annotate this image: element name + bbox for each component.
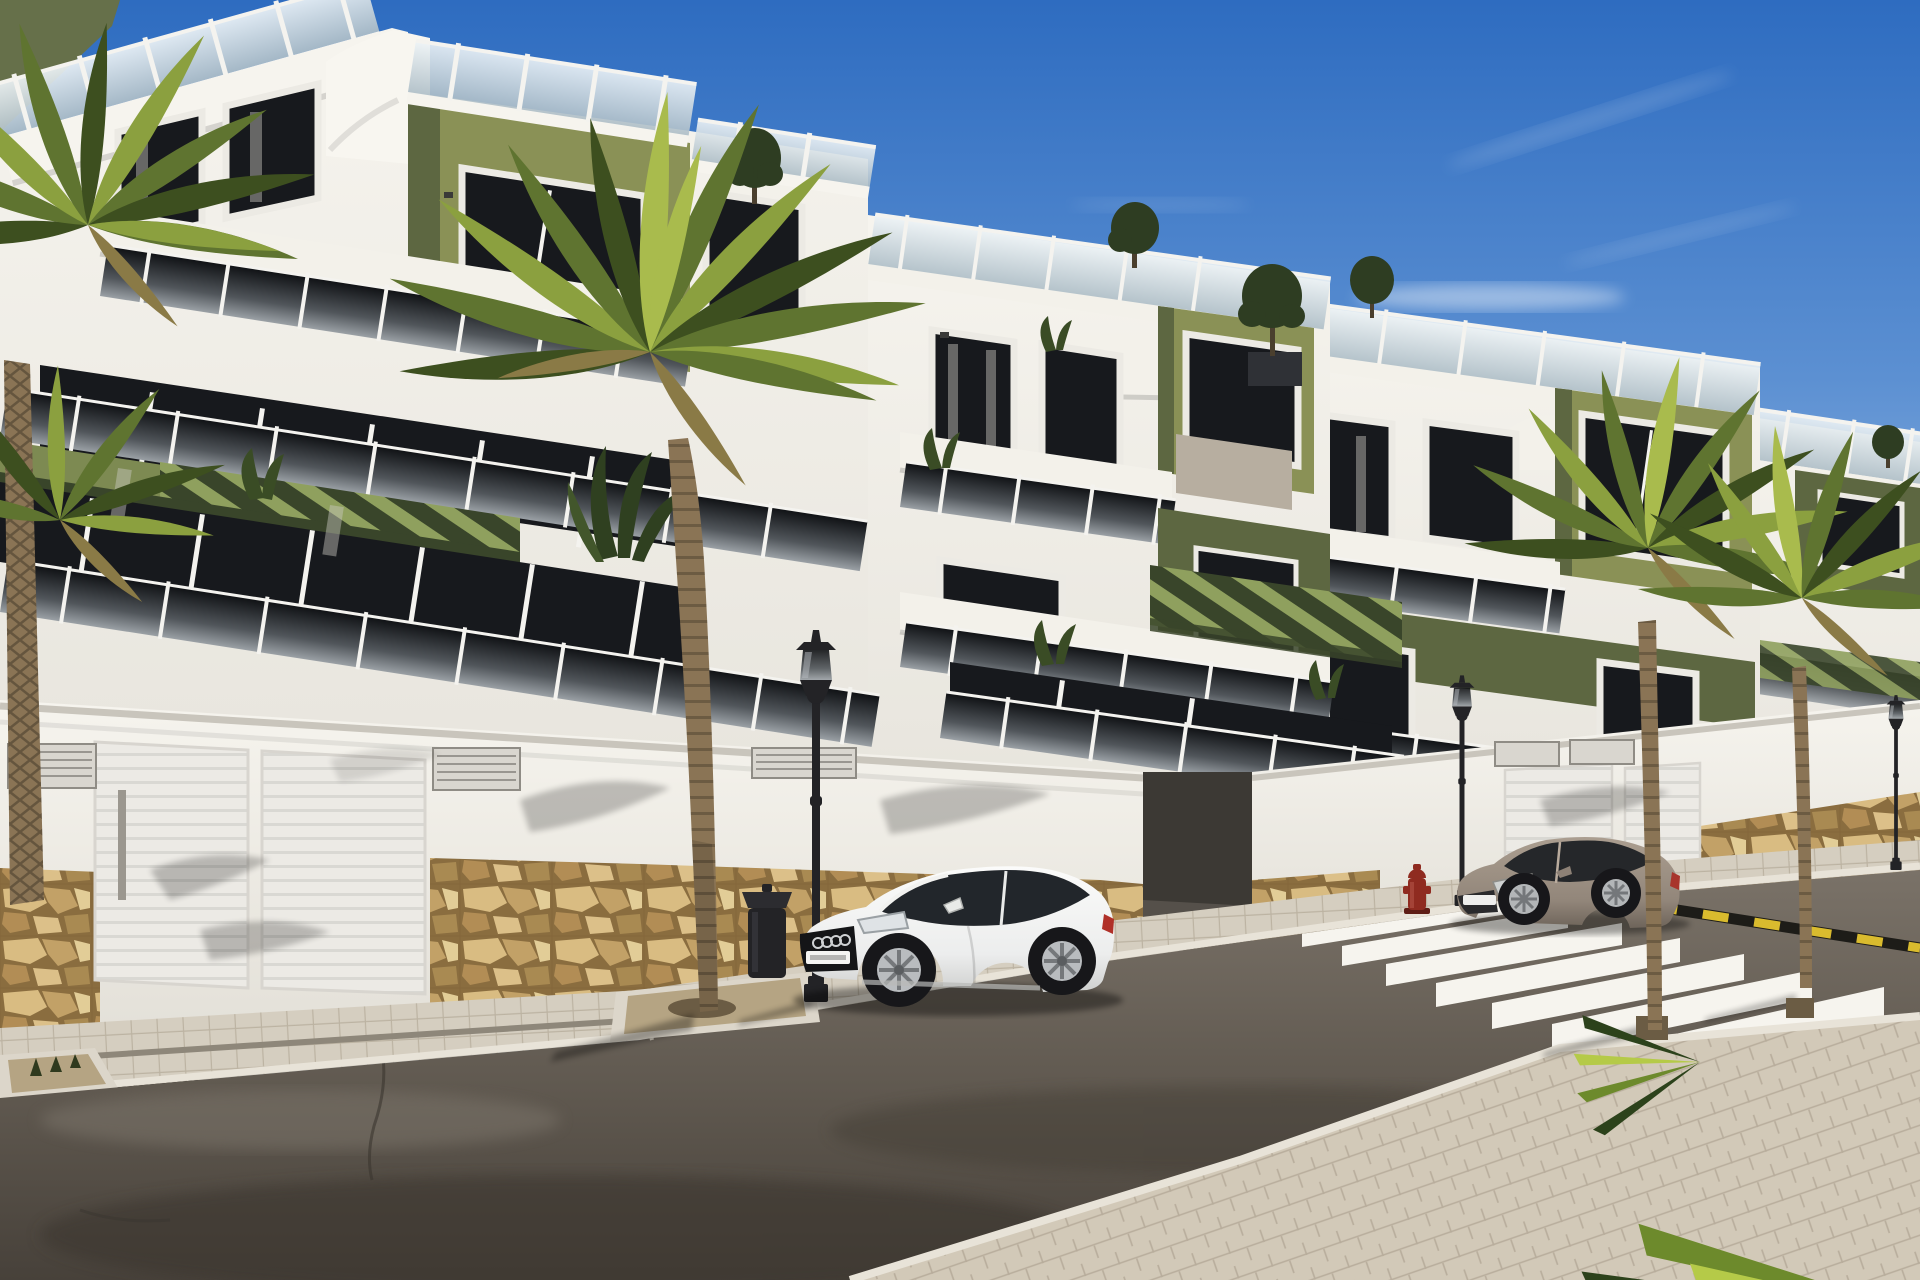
vent [433,748,520,790]
front-wheel [862,933,936,1007]
door-handle-rail [118,790,126,900]
rear-wheel [1028,927,1096,995]
wall-sconce [444,192,453,198]
front-wheel [1498,873,1550,925]
wall-sconce [940,332,949,338]
b-window [1042,344,1120,474]
litter-bin [742,884,792,978]
rear-wheel [1591,868,1641,918]
car-grille [800,926,858,972]
garage-door [262,751,425,994]
render-stage [0,0,1920,1280]
rooftop-tree [1238,264,1305,386]
vent [1495,742,1559,766]
street-scene-render [0,0,1920,1280]
license-plate [1463,895,1496,905]
tree-pit [1786,998,1814,1018]
vent [752,748,856,778]
vent [1570,740,1634,764]
